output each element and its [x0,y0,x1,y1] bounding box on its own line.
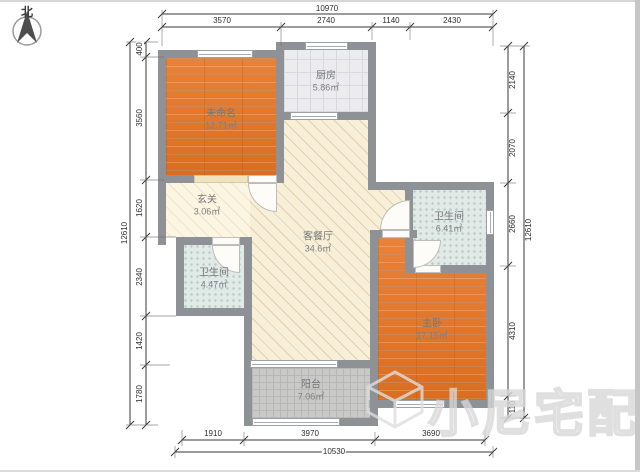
floor-plan-viewer: 未命名12.71㎡ 厨房5.86㎡ 玄关3.06㎡ 客餐厅34.6㎡ 卫生间6.… [0,0,640,472]
dim-left-seg: 3560 [136,108,144,128]
kitchen-sliding-door [290,112,338,120]
room-label-master-bedroom: 主卧17.15㎡ [416,318,448,343]
dim-left-overall: 12610 [121,221,129,245]
dim-right-seg: 2140 [509,70,517,90]
window [486,210,494,235]
room-name: 主卧 [416,318,448,331]
room-area: 17.15㎡ [416,331,448,343]
compass-north-label: 北 [21,3,33,20]
room-label-kitchen: 厨房5.86㎡ [313,70,340,95]
room-name: 卫生间 [199,267,229,280]
room-name: 阳台 [298,379,325,392]
room-label-balcony: 阳台7.06㎡ [298,379,325,404]
room-area: 5.86㎡ [313,83,340,95]
dim-bottom-overall: 10530 [322,448,346,456]
room-name: 厨房 [313,70,340,83]
bathroom-left-door-opening [212,237,240,245]
wall [244,360,252,426]
room-label-unnamed: 未命名12.71㎡ [205,108,237,133]
room-area: 3.06㎡ [194,207,221,219]
room-area: 7.06㎡ [298,392,325,404]
dim-left-seg: 2340 [136,267,144,287]
wall [368,182,494,190]
wall [244,237,252,368]
room-area: 34.6㎡ [303,244,333,256]
wall [176,237,184,316]
screenshot-right-border [635,0,640,472]
dim-bottom-seg: 3970 [300,430,320,438]
dim-left-seg: 1780 [136,384,144,404]
dim-right-seg: 4310 [509,321,517,341]
watermark-text: 小尼宅配 [428,374,640,446]
dim-right-seg: 2070 [509,138,517,158]
wall [370,230,378,426]
dim-top-seg: 1140 [381,17,400,25]
room-area: 12.71㎡ [205,121,237,133]
dim-right-seg: 2660 [509,214,517,234]
dim-top-seg: 3570 [212,17,232,25]
wall [158,50,166,245]
room-label-living-dining: 客餐厅34.6㎡ [303,231,333,256]
dim-left-seg: 1420 [136,331,144,351]
dim-right-overall: 12610 [525,218,533,242]
doorway-threshold [194,175,248,183]
room-label-bathroom-right: 卫生间6.41㎡ [434,211,464,236]
room-area: 6.41㎡ [434,224,464,236]
balcony-sliding-door [250,360,338,368]
room-name: 客餐厅 [303,231,333,244]
dim-left-seg: 400 [136,41,144,56]
dim-left-seg: 1620 [136,198,144,218]
window [305,42,348,50]
dim-top-overall: 10970 [315,5,339,13]
room-name: 未命名 [205,108,237,121]
room-label-hallway: 玄关3.06㎡ [194,194,221,219]
window [197,50,253,58]
window [252,418,340,426]
dim-top-seg: 2430 [442,17,462,25]
entry-door-opening [248,175,277,183]
room-name: 卫生间 [434,211,464,224]
dim-bottom-seg: 1910 [203,430,223,438]
room-label-bathroom-left: 卫生间4.47㎡ [199,267,229,292]
bedroom-door-opening [382,230,410,238]
room-name: 玄关 [194,194,221,207]
dim-top-seg: 2740 [316,17,336,25]
screenshot-top-border [0,0,640,2]
wall [176,308,252,316]
room-area: 4.47㎡ [199,280,229,292]
